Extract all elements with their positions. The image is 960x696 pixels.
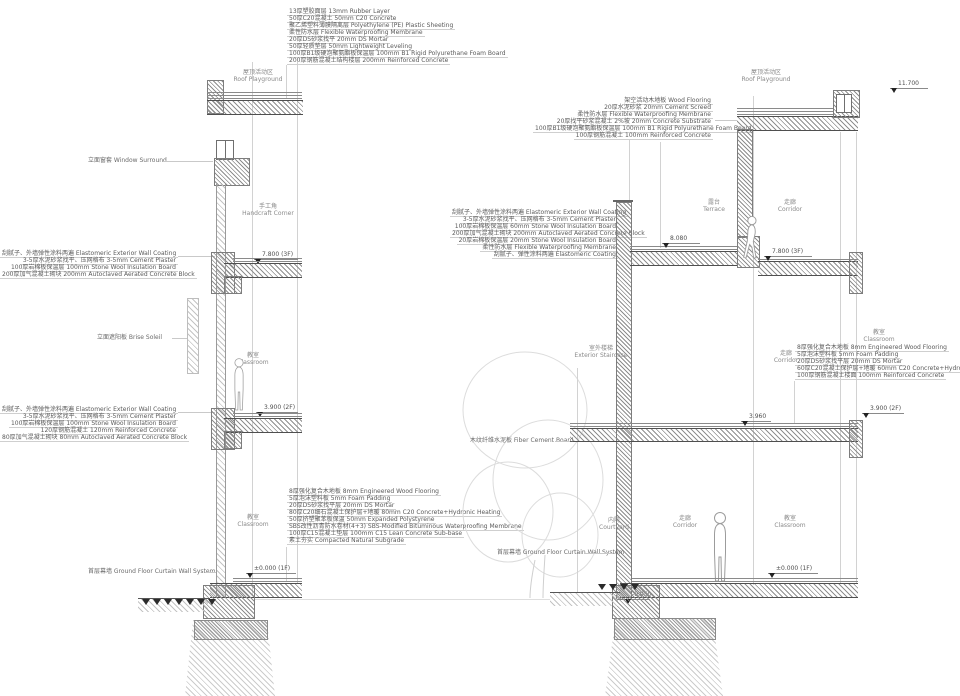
elevation-triangle <box>742 421 748 426</box>
ground-slope-hatch <box>550 593 618 606</box>
elevation-right-ground: ±0.000 (1F) <box>768 565 818 574</box>
room-label-handcraft: 手工角 Handcraft Corner <box>242 203 294 217</box>
ground-marker-triangle <box>164 599 172 605</box>
elevation-left-2f: 3.900 (2F) <box>256 404 298 413</box>
wall-buildup-stack-upper: 刮腻子、外墙弹性涂料两遍 Elastomeric Exterior Wall C… <box>0 251 178 279</box>
elevation-right-2f-inner: 3.960 <box>741 413 771 422</box>
ground-marker-triangle <box>142 599 150 605</box>
roof-slab-right <box>737 116 858 131</box>
person-figure <box>740 214 762 262</box>
mullion-line <box>660 142 661 248</box>
callout-brise-soleil: 立面遮阳板 Brise Soleil <box>97 334 162 341</box>
elevation-triangle <box>765 256 771 261</box>
room-label-classroom-right-1f: 教室 Classroom <box>774 515 805 529</box>
elevation-right-3f: 7.800 (3F) <box>764 248 812 257</box>
material-row: 100厚钢筋混凝土 100mm Reinforced Concrete <box>574 133 713 140</box>
footing-right <box>612 585 660 619</box>
roof-finish-line <box>737 111 833 112</box>
elevation-left-ground: ±0.000 (1F) <box>246 565 296 574</box>
leader-line <box>286 547 287 581</box>
floor-finish-line <box>233 413 302 414</box>
spandrel-beam <box>849 252 863 294</box>
room-label-terrace: 露台 Terrace <box>703 199 725 213</box>
leader-line <box>205 572 216 573</box>
floor-finish-line <box>632 578 858 579</box>
elevation-right-2f: 3.900 (2F) <box>862 405 904 414</box>
leader-line <box>178 412 215 413</box>
roof-finish-line <box>207 95 302 96</box>
floor-finish-line <box>233 261 302 262</box>
leader-line <box>585 553 613 554</box>
stair-line <box>577 368 578 593</box>
person-figure <box>230 356 248 413</box>
floor-buildup-stack-right: 8厚强化复合木地板 8mm Engineered Wood Flooring5厚… <box>795 345 960 380</box>
roof-buildup-stack-left: 13厚塑胶面层 13mm Rubber Layer50厚C20混凝土 50mm … <box>287 9 508 65</box>
leader-line <box>794 381 795 424</box>
ground-marker-triangle <box>186 599 194 605</box>
window-sill-block <box>214 158 250 186</box>
spandrel-beam <box>849 420 863 458</box>
downstand-beam <box>224 276 242 294</box>
callout-curtain-wall-left: 首层幕墙 Ground Floor Curtain Wall System <box>88 568 215 575</box>
terrace-slab <box>630 251 738 266</box>
leader-line <box>715 120 737 121</box>
material-row: 80厚加气混凝土砌块 80mm Autoclaved Aerated Concr… <box>0 435 189 442</box>
brise-soleil-panel <box>187 298 199 374</box>
roof-slab-left <box>207 100 303 115</box>
leader-line <box>286 65 287 98</box>
elevation-triangle <box>863 413 869 418</box>
roof-finish-line <box>737 108 833 109</box>
window <box>216 140 234 160</box>
ground-marker-triangle <box>631 584 639 590</box>
floor-finish-line <box>233 258 302 259</box>
floor-finish-line <box>233 578 302 579</box>
room-label-roof-left: 屋顶活动区 Roof Playground <box>233 69 282 83</box>
exterior-wall-left <box>216 184 226 598</box>
room-label-corridor-3f: 走廊 Corridor <box>778 199 802 213</box>
floor-finish-line <box>758 259 858 260</box>
room-label-corridor-1f: 走廊 Corridor <box>673 515 697 529</box>
ground-marker-triangle <box>197 599 205 605</box>
mullion-line <box>753 96 754 585</box>
downstand-beam <box>224 431 242 449</box>
window <box>836 94 852 113</box>
room-label-classroom-right-mid: 教室 Classroom <box>863 329 894 343</box>
pile-cap-left <box>194 620 268 640</box>
material-row: 200厚钢筋混凝土结构楼层 200mm Reinforced Concrete <box>287 58 450 65</box>
ground-marker-triangle <box>620 584 628 590</box>
roof-buildup-stack-right: 架空活动木地板 Wood Flooring20厚水泥砂浆 20mm Cement… <box>533 98 713 140</box>
room-label-exterior-staircase: 室外楼梯 Exterior Staircase <box>574 345 627 359</box>
terrace-wall-stack: 刮腻子、外墙弹性涂料两遍 Elastomeric Exterior Wall C… <box>450 210 618 259</box>
corridor-slab-3f <box>758 261 858 276</box>
room-label-classroom-left-lower: 教室 Classroom <box>237 514 268 528</box>
leader-line <box>178 256 215 257</box>
elevation-terrace: 8.080 <box>662 235 700 244</box>
floor-finish-line <box>570 426 858 427</box>
floor-finish-line <box>570 423 858 424</box>
elevation-roof-right: 11.700 <box>890 80 928 89</box>
roof-finish-line <box>207 98 302 99</box>
leader-line <box>163 161 213 162</box>
elevation-triangle <box>663 243 669 248</box>
material-row: 刮腻子、弹性涂料两遍 Elastomeric Coating <box>492 252 618 259</box>
ground-marker-triangle <box>153 599 161 605</box>
material-row: 200厚加气混凝土砌块 200mm Autoclaved Aerated Con… <box>0 272 197 279</box>
deck-line <box>630 249 737 250</box>
wall-section-drawing: 13厚塑胶面层 13mm Rubber Layer50厚C20混凝土 50mm … <box>0 0 960 696</box>
material-row: 素土夯实 Compacted Natural Subgrade <box>287 538 406 545</box>
leader-line <box>555 441 570 442</box>
tree-sketch <box>440 320 610 600</box>
leader-line <box>172 338 187 339</box>
floor-finish-line <box>233 581 302 582</box>
pile-cap-right <box>614 618 716 640</box>
room-label-courtyard: 内院 Courtyard <box>599 517 629 531</box>
ground-marker-triangle <box>598 584 606 590</box>
ground-marker-triangle <box>175 599 183 605</box>
wall-buildup-stack-lower: 刮腻子、外墙弹性涂料两遍 Elastomeric Exterior Wall C… <box>0 407 178 442</box>
floor-finish-line <box>233 416 302 417</box>
window-mullion <box>844 95 845 112</box>
room-label-roof-right: 屋顶活动区 Roof Playground <box>741 69 790 83</box>
material-row: 100厚钢筋混凝土楼面 100mm Reinforced Concrete <box>795 373 946 380</box>
window-mullion <box>225 141 226 159</box>
deck-line <box>630 246 737 247</box>
floor-finish-line <box>632 581 858 582</box>
person-figure <box>708 511 732 583</box>
roof-finish-line <box>737 114 833 115</box>
ground-marker-triangle <box>208 599 216 605</box>
elevation-triangle <box>891 88 897 93</box>
mullion-line <box>629 140 630 202</box>
floor-slab-2f-right <box>570 428 858 442</box>
roof-finish-line <box>207 92 302 93</box>
callout-window-surround: 立面窗套 Window Surround <box>88 157 167 164</box>
ground-marker-triangle <box>609 584 617 590</box>
